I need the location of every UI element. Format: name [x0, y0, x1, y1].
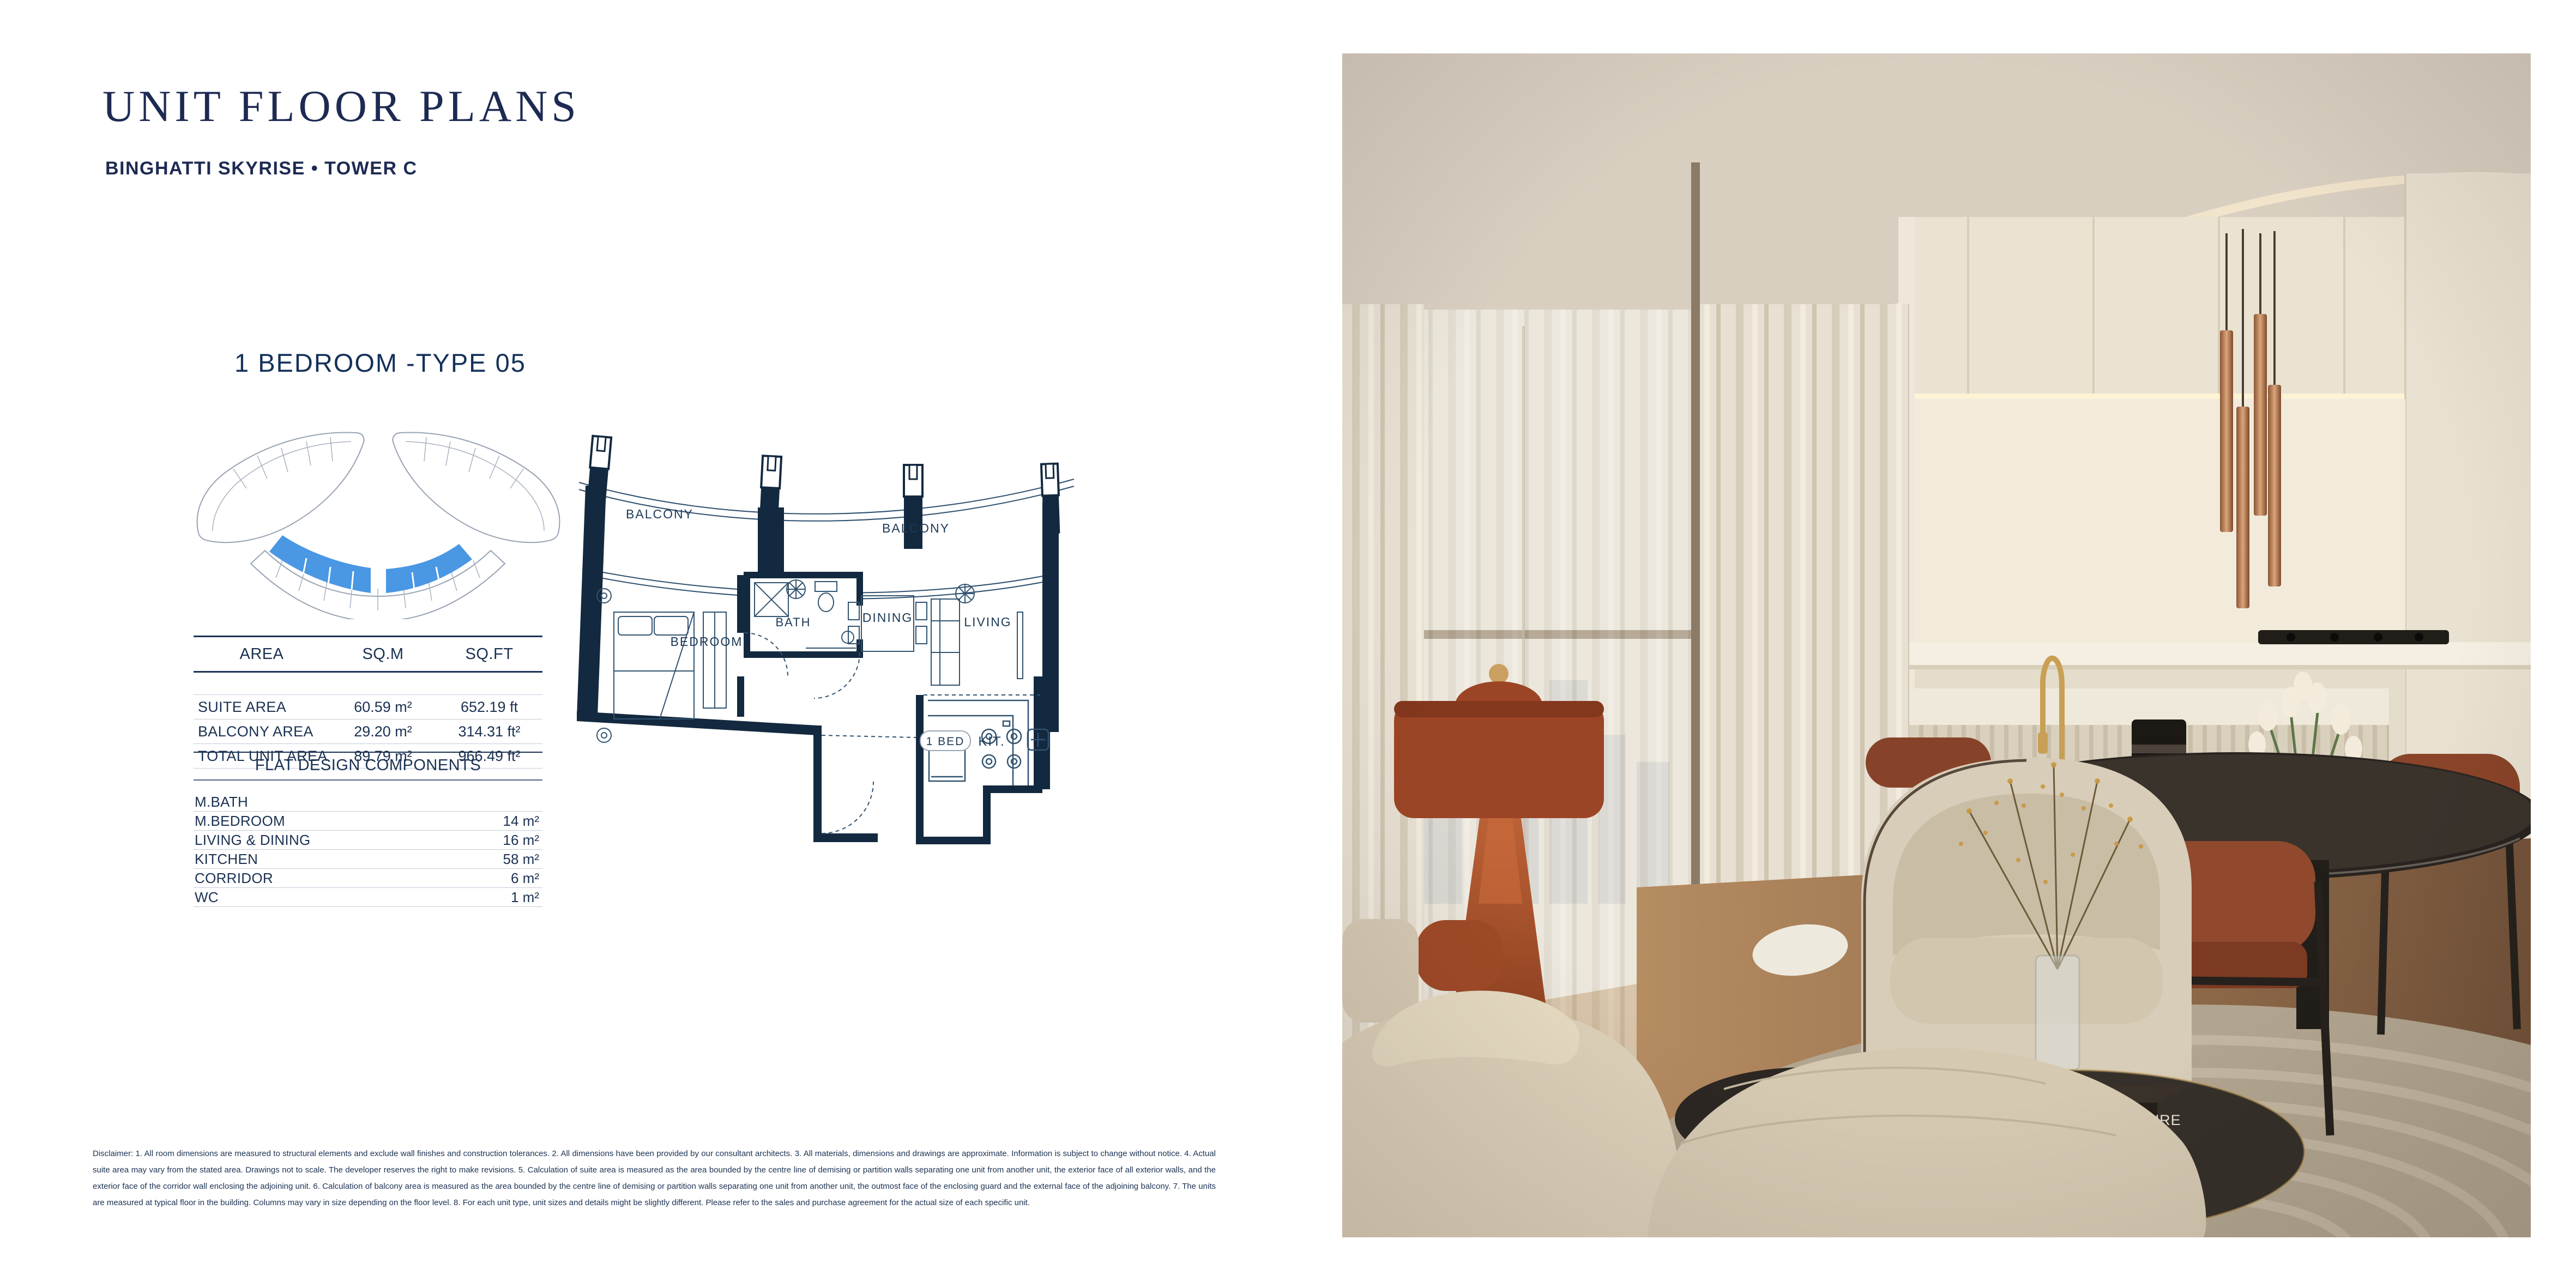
component-row: WC1 m² — [194, 888, 542, 907]
area-row-sqft: 652.19 ft — [436, 699, 542, 716]
component-label: LIVING & DINING — [194, 832, 311, 849]
unit-floor-plan-drawing: BALCONY BALCONY BATH BEDROOM DINING LIVI… — [567, 432, 1085, 871]
unit-type-heading: 1 BEDROOM -TYPE 05 — [234, 348, 526, 378]
area-table-header: AREA SQ.M SQ.FT — [194, 636, 542, 673]
kitchen-label: KIT. — [978, 734, 1005, 749]
living-label: LIVING — [964, 615, 1011, 629]
page-subtitle: BINGHATTI SKYRISE • TOWER C — [105, 158, 418, 179]
disclaimer-text: Disclaimer: 1. All room dimensions are m… — [93, 1146, 1216, 1211]
living-dining-furniture — [848, 584, 1023, 685]
sqft-col-header: SQ.FT — [436, 645, 542, 663]
brochure-page: UNIT FLOOR PLANS BINGHATTI SKYRISE • TOW… — [0, 0, 2576, 1288]
component-label: KITCHEN — [194, 851, 258, 868]
component-value: 58 m² — [503, 851, 542, 868]
component-label: M.BATH — [194, 794, 248, 811]
area-row-label: SUITE AREA — [194, 699, 330, 716]
area-row-sqm: 60.59 m² — [330, 699, 436, 716]
area-table-row: SUITE AREA60.59 m²652.19 ft — [194, 695, 542, 719]
bed-badge-label: 1 BED — [926, 735, 965, 748]
component-label: WC — [194, 889, 219, 906]
interior-photo: analysing ARCHITECTURE analysing ARCHITE… — [1342, 53, 2531, 1237]
balcony-left-label: BALCONY — [626, 507, 693, 521]
structural-columns — [586, 436, 1060, 549]
component-value: 14 m² — [503, 813, 542, 830]
sqm-col-header: SQ.M — [330, 645, 436, 663]
component-row: KITCHEN58 m² — [194, 850, 542, 869]
area-row-label: BALCONY AREA — [194, 723, 330, 740]
area-col-header: AREA — [194, 645, 330, 663]
components-table: FLAT DESIGN COMPONENTS M.BATHM.BEDROOM14… — [194, 752, 542, 907]
component-value: 16 m² — [503, 832, 542, 849]
area-row-sqft: 314.31 ft² — [436, 723, 542, 740]
component-value: 6 m² — [511, 870, 542, 887]
bedroom-label: BEDROOM — [671, 634, 743, 649]
component-row: CORRIDOR6 m² — [194, 869, 542, 888]
components-rows: M.BATHM.BEDROOM14 m²LIVING & DINING16 m²… — [194, 793, 542, 907]
area-row-sqm: 29.20 m² — [330, 723, 436, 740]
area-table-row: BALCONY AREA29.20 m²314.31 ft² — [194, 719, 542, 744]
bath-label: BATH — [775, 615, 811, 629]
components-heading: FLAT DESIGN COMPONENTS — [194, 752, 542, 781]
page-title: UNIT FLOOR PLANS — [102, 81, 580, 132]
component-label: M.BEDROOM — [194, 813, 285, 830]
area-table: AREA SQ.M SQ.FT SUITE AREA60.59 m²652.19… — [194, 636, 542, 769]
component-row: M.BATH — [194, 793, 542, 812]
tower-key-plan-graphic — [190, 430, 567, 619]
balcony-right-label: BALCONY — [882, 521, 950, 535]
component-row: M.BEDROOM14 m² — [194, 812, 542, 831]
component-label: CORRIDOR — [194, 870, 273, 887]
component-value: 1 m² — [511, 889, 542, 906]
dining-label: DINING — [862, 610, 913, 625]
component-row: LIVING & DINING16 m² — [194, 831, 542, 850]
